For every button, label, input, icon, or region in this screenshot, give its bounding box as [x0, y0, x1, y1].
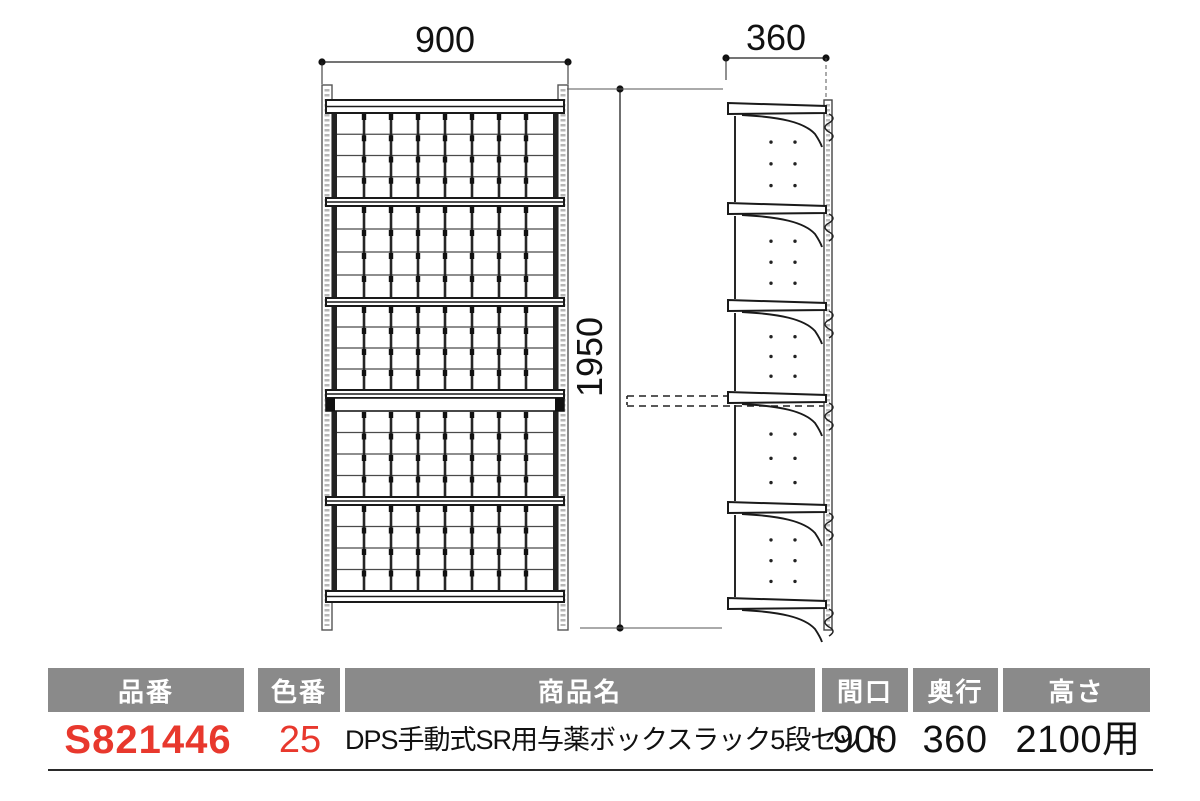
height-value: 2100用	[1003, 712, 1153, 769]
side-shelf-level	[728, 392, 833, 501]
side-shelf-level	[728, 103, 833, 202]
front-box-grid-section	[337, 207, 553, 298]
color-number-value: 25	[258, 712, 342, 769]
technical-drawing: 900 360 1950	[0, 0, 1200, 662]
side-shelf-level	[728, 300, 833, 391]
side-depth-dimension-label: 360	[746, 17, 806, 58]
col-header-color-number: 色番	[258, 668, 340, 712]
product-name-value: DPS手動式SR用与薬ボックスラック5段セット	[345, 712, 815, 769]
col-header-part-number: 品番	[48, 668, 244, 712]
front-view	[322, 85, 568, 630]
side-view	[728, 100, 833, 642]
front-upright-post	[322, 85, 332, 630]
col-header-product-name: 商品名	[345, 668, 815, 712]
front-width-dimension-label: 900	[415, 19, 475, 60]
part-number-value: S821446	[48, 712, 248, 769]
side-shelf-level	[728, 502, 833, 597]
front-upright-post	[558, 85, 568, 630]
col-header-depth: 奥行	[913, 668, 998, 712]
side-shelf-level	[728, 203, 833, 299]
front-box-grid-section	[337, 412, 553, 497]
side-shelf-level	[728, 598, 833, 642]
front-box-grid-section	[337, 506, 553, 591]
front-pullout-rail	[326, 398, 564, 411]
table-bottom-rule	[48, 769, 1153, 771]
front-box-grid-section	[337, 114, 553, 198]
height-dimension-label: 1950	[569, 317, 610, 397]
depth-value: 360	[910, 712, 1000, 769]
catalog-page: 900 360 1950 品番 色番 商品名 間口 奥行 高さ S821446 …	[0, 0, 1200, 801]
col-header-width: 間口	[822, 668, 908, 712]
front-box-grid-section	[337, 307, 553, 390]
col-header-height: 高さ	[1003, 668, 1150, 712]
width-value: 900	[820, 712, 910, 769]
